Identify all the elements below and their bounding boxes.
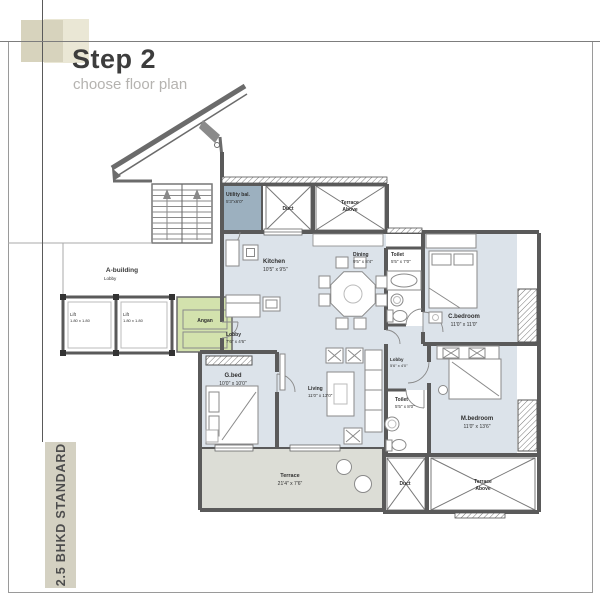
lift2-dims: 1.80 x 1.80 — [123, 318, 144, 323]
plan-type-label: 2.5 BHKD STANDARD — [54, 443, 68, 586]
toilet-top-fixtures — [387, 271, 421, 322]
duct-bottom-label: Duct — [399, 481, 410, 487]
living-dims: 11'0" x 13'0" — [308, 393, 333, 398]
utility-bal-label: Utility bal. — [226, 192, 251, 198]
lobby-passage-dims: 5'6" x 4'0" — [390, 363, 408, 368]
dining-niche — [313, 234, 383, 246]
lift-shafts — [60, 294, 175, 356]
lobby-passage-label: Lobby — [390, 357, 404, 362]
roof-structure — [112, 86, 247, 181]
gbed-label: G.bed — [224, 373, 241, 379]
terrace-main-dims: 21'4" x 7'6" — [278, 481, 303, 487]
terrace-main-label: Terrace — [280, 473, 299, 479]
gbed-wardrobe-shutter — [206, 356, 252, 365]
gbed-dims: 10'0" x 10'0" — [219, 381, 247, 387]
dining-label: Dining — [353, 252, 369, 258]
floor-plan[interactable]: A-building Lobby Utility bal. 5'3"x6'0" … — [0, 0, 600, 600]
toilet-top-label: Toilet — [391, 252, 404, 258]
kitchen-dims: 10'5" x 9'5" — [263, 267, 288, 273]
a-building-lobby-label: Lobby — [104, 276, 117, 281]
kitchen-label: Kitchen — [263, 259, 285, 265]
terrace-above-top-label1: Terrace — [341, 200, 359, 206]
mbedroom-label: M.bedroom — [461, 416, 493, 422]
cbedroom-label: C.bedroom — [448, 314, 480, 320]
decor-vertical-line — [42, 0, 43, 442]
terrace-above-top-label2: Above — [342, 207, 358, 213]
cbedroom-dims: 11'0" x 11'0" — [451, 322, 478, 328]
duct-top-label: Duct — [282, 206, 293, 212]
dining-dims: 9'5" x 8'4" — [353, 259, 373, 264]
lobby-entrance-label: Lobby — [226, 332, 241, 338]
page: Step 2 choose floor plan 2.5 BHKD STANDA… — [0, 0, 600, 600]
plan-type-bar: 2.5 BHKD STANDARD — [45, 442, 76, 588]
lift1-label: Lift — [70, 312, 77, 317]
lobby-entrance-dims: 7'6" x 4'6" — [226, 339, 246, 344]
toilet-bottom-label: Toilet — [395, 397, 408, 403]
header-rule-line — [0, 41, 600, 42]
toilet-bottom-dims: 5'5" x 8'0" — [395, 404, 415, 409]
mbedroom-dims: 11'0" x 13'6" — [463, 424, 490, 430]
lift1-dims: 1.80 x 1.80 — [70, 318, 91, 323]
staircase — [152, 184, 212, 243]
living-label: Living — [308, 386, 323, 392]
a-building-label: A-building — [106, 267, 138, 274]
gbed-bed — [206, 386, 258, 444]
utility-bal-dims: 5'3"x6'0" — [226, 199, 244, 204]
mbedroom-window — [518, 400, 537, 451]
terrace-above-bottom-label1: Terrace — [474, 479, 492, 485]
cbedroom-window — [518, 289, 537, 342]
toilet-top-dims: 5'5" x 7'0" — [391, 259, 411, 264]
lift2-label: Lift — [123, 312, 130, 317]
terrace-above-bottom-label2: Above — [475, 486, 491, 492]
angan-label: Angan — [197, 318, 213, 324]
toilet-bottom-fixtures — [385, 417, 406, 451]
